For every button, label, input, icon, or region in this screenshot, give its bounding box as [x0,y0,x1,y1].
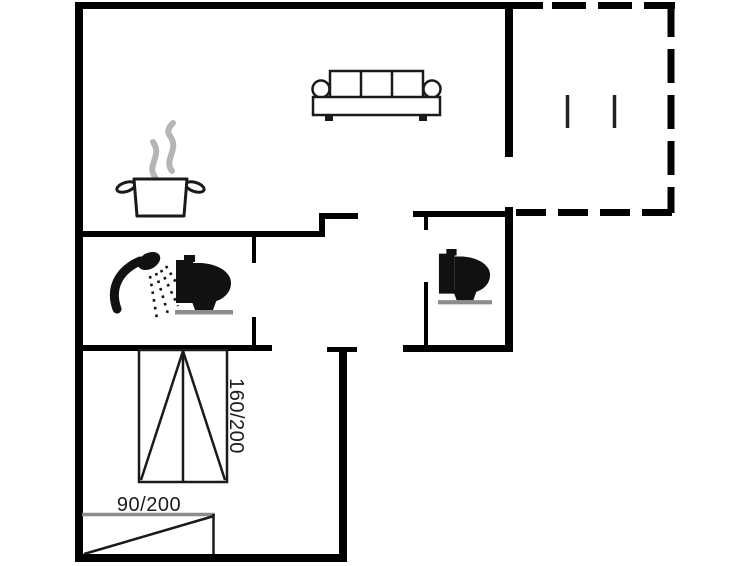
shower-hose [114,261,140,309]
floorplan-canvas: 160/200 90/200 [0,0,755,566]
toilet-base-line [175,310,233,315]
wc-top-wall [413,211,513,217]
toilet-base-line [438,300,492,304]
outer-wall-bottom [75,554,347,562]
wc-door-jamb-top [424,217,428,230]
terrace-dashed-outline [516,3,675,213]
bedroom-right-wall [339,347,347,562]
toilet-pedestal [191,299,217,310]
sofa-armrest [313,81,330,98]
toilet-tank [176,260,193,303]
sofa-icon [313,71,441,121]
sofa-armrest [424,81,441,98]
toilet-pedestal [453,290,477,300]
sofa-seat [313,97,440,115]
hall-right-wall [505,207,513,352]
single-bed-size-label: 90/200 [117,494,181,516]
double-bed-diagonal [183,351,225,480]
pot-body [134,179,187,216]
outer-wall-left [75,2,83,562]
double-bed-size-label: 160/200 [225,378,247,454]
bath-door-jamb-bottom [252,317,256,345]
toilet-tank [439,254,455,294]
double-bed-diagonal [141,351,183,480]
toilet-icon [438,249,492,304]
steam-icon [168,123,173,171]
hall-top-wall [319,213,358,219]
toilet-icon [175,255,233,315]
living-room-right-wall [505,2,513,157]
toilet-bowl [193,263,231,303]
kitchen-bath-divider-wall [79,231,325,237]
double-bed-icon [139,350,227,482]
single-bed-icon [82,514,215,554]
single-bed-diagonal [84,516,214,554]
outer-wall-top [75,2,543,9]
toilet-bowl [455,256,490,293]
wc-bottom-wall [403,345,513,352]
cooking-pot-icon [116,123,206,216]
sofa-back [330,71,423,98]
bath-door-jamb-top [252,237,256,263]
wc-left-wall [424,282,428,347]
shower-head [135,248,164,273]
shower-icon [114,248,185,319]
steam-icon [152,142,156,177]
